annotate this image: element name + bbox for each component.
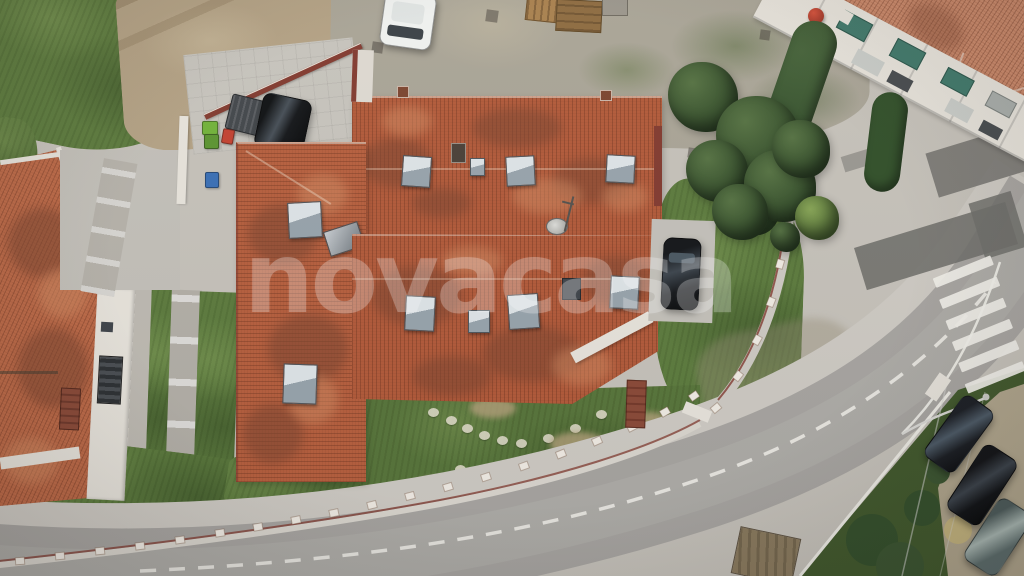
car-white bbox=[378, 0, 437, 51]
rooftop-equipment bbox=[97, 355, 123, 404]
drain-square bbox=[759, 29, 770, 40]
bush-small bbox=[770, 222, 800, 252]
skylight bbox=[505, 155, 536, 186]
roof-parapet-maroon bbox=[654, 126, 662, 206]
car-roof bbox=[391, 1, 425, 25]
chimney-stack bbox=[397, 86, 409, 98]
main-roof-upper-wing bbox=[352, 96, 662, 243]
awning-teal bbox=[889, 38, 927, 71]
chimney-stack bbox=[600, 90, 612, 101]
chimney bbox=[451, 143, 466, 163]
awning-grey bbox=[985, 90, 1018, 118]
waste-bin-green bbox=[202, 121, 218, 135]
skylight bbox=[401, 155, 432, 188]
skylight bbox=[470, 158, 485, 176]
terrace-tiles bbox=[944, 98, 974, 123]
awning-teal bbox=[940, 67, 975, 97]
waste-bin-blue bbox=[205, 172, 219, 188]
crate-grey bbox=[602, 0, 628, 16]
chimney-brick bbox=[59, 388, 81, 431]
terrace-window bbox=[886, 70, 913, 93]
waste-bin-green bbox=[204, 134, 219, 149]
tree bbox=[772, 120, 830, 178]
rooftop-unit bbox=[101, 322, 114, 333]
skylight bbox=[605, 154, 635, 183]
bush-light bbox=[795, 196, 839, 240]
terrace-tiles bbox=[851, 48, 885, 76]
fence-line bbox=[0, 371, 58, 374]
skylight bbox=[282, 363, 317, 404]
photo-watermark: novacasa bbox=[244, 226, 764, 334]
terrace-window bbox=[978, 120, 1003, 141]
red-object bbox=[221, 128, 235, 145]
wooden-crate bbox=[555, 0, 603, 33]
drain-square bbox=[485, 9, 499, 23]
aerial-photo-scene: novacasa bbox=[0, 0, 1024, 576]
brick-pillar bbox=[625, 380, 647, 429]
car-windshield bbox=[387, 24, 424, 40]
gable-wall-left bbox=[351, 50, 374, 103]
